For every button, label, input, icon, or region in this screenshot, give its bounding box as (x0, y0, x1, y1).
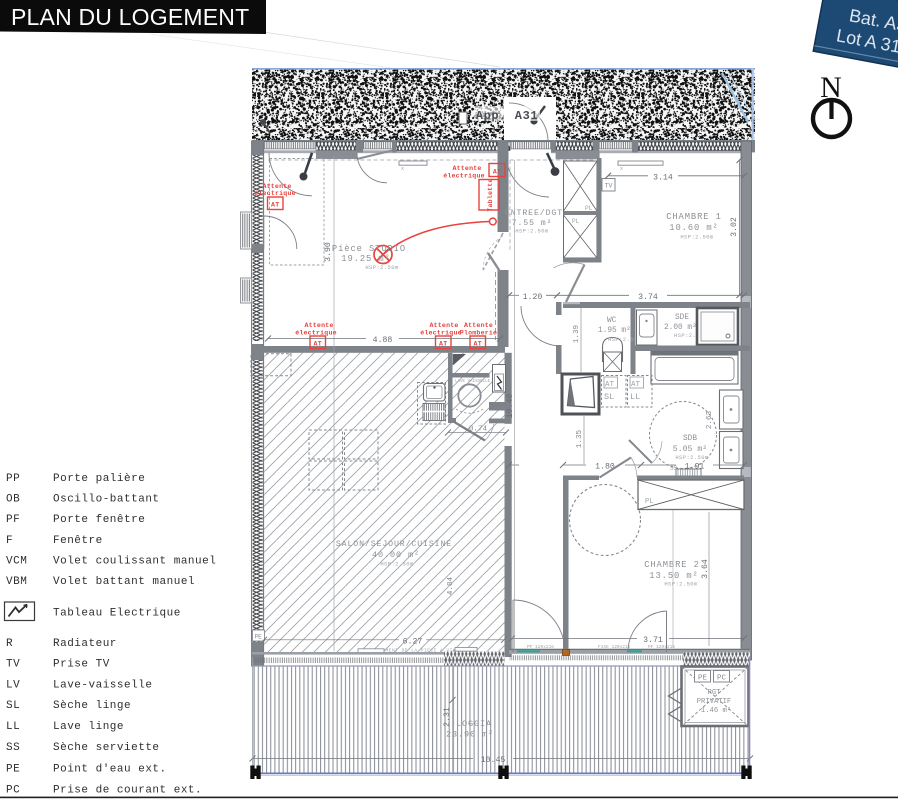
svg-text:Attente: Attente (464, 322, 493, 329)
svg-text:Attente: Attente (452, 165, 481, 172)
svg-text:x: x (401, 166, 404, 172)
svg-text:10.40: 10.40 (506, 394, 515, 419)
svg-text:FIXE 120x215: FIXE 120x215 (598, 644, 631, 650)
svg-text:SL: SL (6, 700, 20, 712)
svg-text:3.74: 3.74 (638, 293, 658, 302)
svg-text:6.27: 6.27 (403, 637, 423, 646)
svg-text:2.63: 2.63 (706, 410, 714, 429)
svg-text:CHAMBRE 2: CHAMBRE 2 (644, 560, 700, 570)
svg-text:4.88: 4.88 (373, 336, 393, 345)
svg-text:3.02: 3.02 (730, 217, 739, 237)
svg-text:Pièce STUDIO: Pièce STUDIO (332, 244, 406, 254)
svg-text:5.05 m²: 5.05 m² (673, 445, 707, 454)
svg-text:Volet coulissant manuel: Volet coulissant manuel (53, 556, 216, 568)
svg-text:TV: TV (605, 183, 613, 190)
svg-text:Prise TV: Prise TV (53, 659, 110, 671)
svg-text:3.64: 3.64 (701, 559, 710, 579)
svg-text:HSP:2.50m: HSP:2.50m (680, 234, 714, 241)
svg-text:Lave-vaisselle: Lave-vaisselle (53, 680, 152, 692)
svg-text:électrique: électrique (443, 173, 485, 180)
svg-text:2.00 m²: 2.00 m² (664, 323, 697, 332)
svg-text:Oscillo-battant: Oscillo-battant (53, 494, 160, 506)
svg-text:1.39: 1.39 (573, 324, 581, 343)
svg-text:PE: PE (6, 764, 20, 776)
svg-text:App. A31: App. A31 (476, 109, 538, 123)
svg-text:2.31: 2.31 (443, 707, 452, 727)
svg-text:SL: SL (604, 392, 614, 402)
svg-text:3.14: 3.14 (653, 173, 673, 182)
svg-text:PE: PE (255, 634, 263, 641)
svg-text:1.46 m²: 1.46 m² (701, 706, 731, 715)
svg-text:1.35: 1.35 (576, 429, 584, 448)
svg-text:PF: PF (6, 514, 20, 526)
svg-text:Radiateur: Radiateur (53, 638, 117, 650)
svg-text:x: x (620, 166, 623, 172)
svg-text:3.71: 3.71 (643, 636, 663, 645)
svg-text:HSP:2.50m: HSP:2.50m (675, 454, 709, 461)
svg-text:SS: SS (670, 465, 678, 472)
svg-text:PC: PC (717, 675, 727, 683)
svg-text:R: R (6, 638, 13, 650)
svg-text:HSP:2.50m: HSP:2.50m (380, 561, 414, 568)
svg-text:Porte palière: Porte palière (53, 473, 145, 485)
svg-text:SS: SS (6, 742, 20, 754)
svg-text:AT: AT (439, 341, 447, 348)
svg-text:1.95 m²: 1.95 m² (598, 326, 631, 335)
svg-text:SDB: SDB (683, 435, 697, 443)
svg-text:PE: PE (698, 675, 708, 683)
svg-text:10.60 m²: 10.60 m² (669, 223, 718, 233)
svg-text:PRIVATIF: PRIVATIF (697, 698, 732, 706)
svg-text:SDE: SDE (675, 314, 689, 322)
svg-text:AT: AT (474, 341, 482, 348)
svg-text:LL: LL (630, 392, 640, 402)
svg-text:PC: PC (6, 785, 20, 797)
svg-text:10.45: 10.45 (481, 756, 506, 765)
svg-text:RGT: RGT (708, 689, 722, 697)
svg-text:F: F (6, 535, 13, 547)
svg-text:AT: AT (493, 169, 501, 176)
svg-text:Attente: Attente (262, 183, 291, 190)
svg-text:HSP:2.50m: HSP:2.50m (365, 264, 399, 271)
svg-text:Tablette: Tablette (487, 178, 494, 211)
svg-text:Sèche serviette: Sèche serviette (53, 742, 160, 754)
svg-text:VBM: VBM (6, 576, 27, 588)
svg-text:13.50 m²: 13.50 m² (649, 571, 698, 581)
svg-text:LOGGIA: LOGGIA (456, 719, 492, 729)
svg-text:LAVE VAISSELLE: LAVE VAISSELLE (455, 380, 491, 384)
svg-text:Attente: Attente (304, 322, 333, 329)
svg-text:Tableau Electrique: Tableau Electrique (53, 608, 181, 620)
svg-text:AT: AT (271, 202, 279, 209)
svg-text:ENTREE/DGT: ENTREE/DGT (505, 208, 563, 218)
svg-text:Volet battant manuel: Volet battant manuel (53, 576, 195, 588)
svg-text:PF 120x215: PF 120x215 (527, 644, 554, 650)
svg-text:LL: LL (6, 721, 20, 733)
svg-text:HSP:2.50m: HSP:2.50m (515, 228, 549, 235)
svg-text:23.90 m²: 23.90 m² (446, 730, 494, 740)
svg-text:AT: AT (631, 381, 641, 389)
svg-text:Attente: Attente (429, 322, 458, 329)
svg-text:PL: PL (585, 205, 593, 212)
svg-text:HSP:2.50m: HSP:2.50m (664, 581, 698, 588)
svg-text:PL: PL (645, 498, 653, 506)
svg-text:WC: WC (607, 317, 617, 325)
svg-text:4.84: 4.84 (447, 576, 455, 595)
svg-text:PL: PL (572, 218, 580, 225)
svg-text:SALON/SEJOUR/CUISINE: SALON/SEJOUR/CUISINE (336, 539, 452, 549)
svg-text:0.74: 0.74 (469, 426, 488, 434)
svg-text:Fenêtre: Fenêtre (53, 535, 103, 547)
svg-text:électrique: électrique (254, 190, 296, 197)
svg-text:Sèche linge: Sèche linge (53, 700, 131, 712)
svg-text:CHAMBRE 1: CHAMBRE 1 (666, 212, 722, 222)
svg-text:Prise de courant ext.: Prise de courant ext. (53, 785, 202, 797)
svg-text:VCM: VCM (6, 556, 27, 568)
svg-text:Point d'eau ext.: Point d'eau ext. (53, 764, 167, 776)
svg-text:40.00 m²: 40.00 m² (372, 550, 420, 560)
svg-text:Porte fenêtre: Porte fenêtre (53, 514, 145, 526)
svg-text:1.20: 1.20 (523, 293, 543, 302)
svg-text:19.25 m²: 19.25 m² (341, 254, 390, 264)
svg-text:AT: AT (314, 341, 322, 348)
svg-text:LV: LV (6, 680, 20, 692)
svg-text:TV: TV (6, 659, 20, 671)
svg-text:PF 120x215: PF 120x215 (648, 644, 675, 650)
svg-text:PP: PP (6, 473, 20, 485)
svg-text:Lave linge: Lave linge (53, 721, 124, 733)
svg-text:PLAN DU LOGEMENT: PLAN DU LOGEMENT (11, 4, 249, 30)
svg-text:OB: OB (6, 494, 20, 506)
svg-text:AT: AT (605, 381, 615, 389)
